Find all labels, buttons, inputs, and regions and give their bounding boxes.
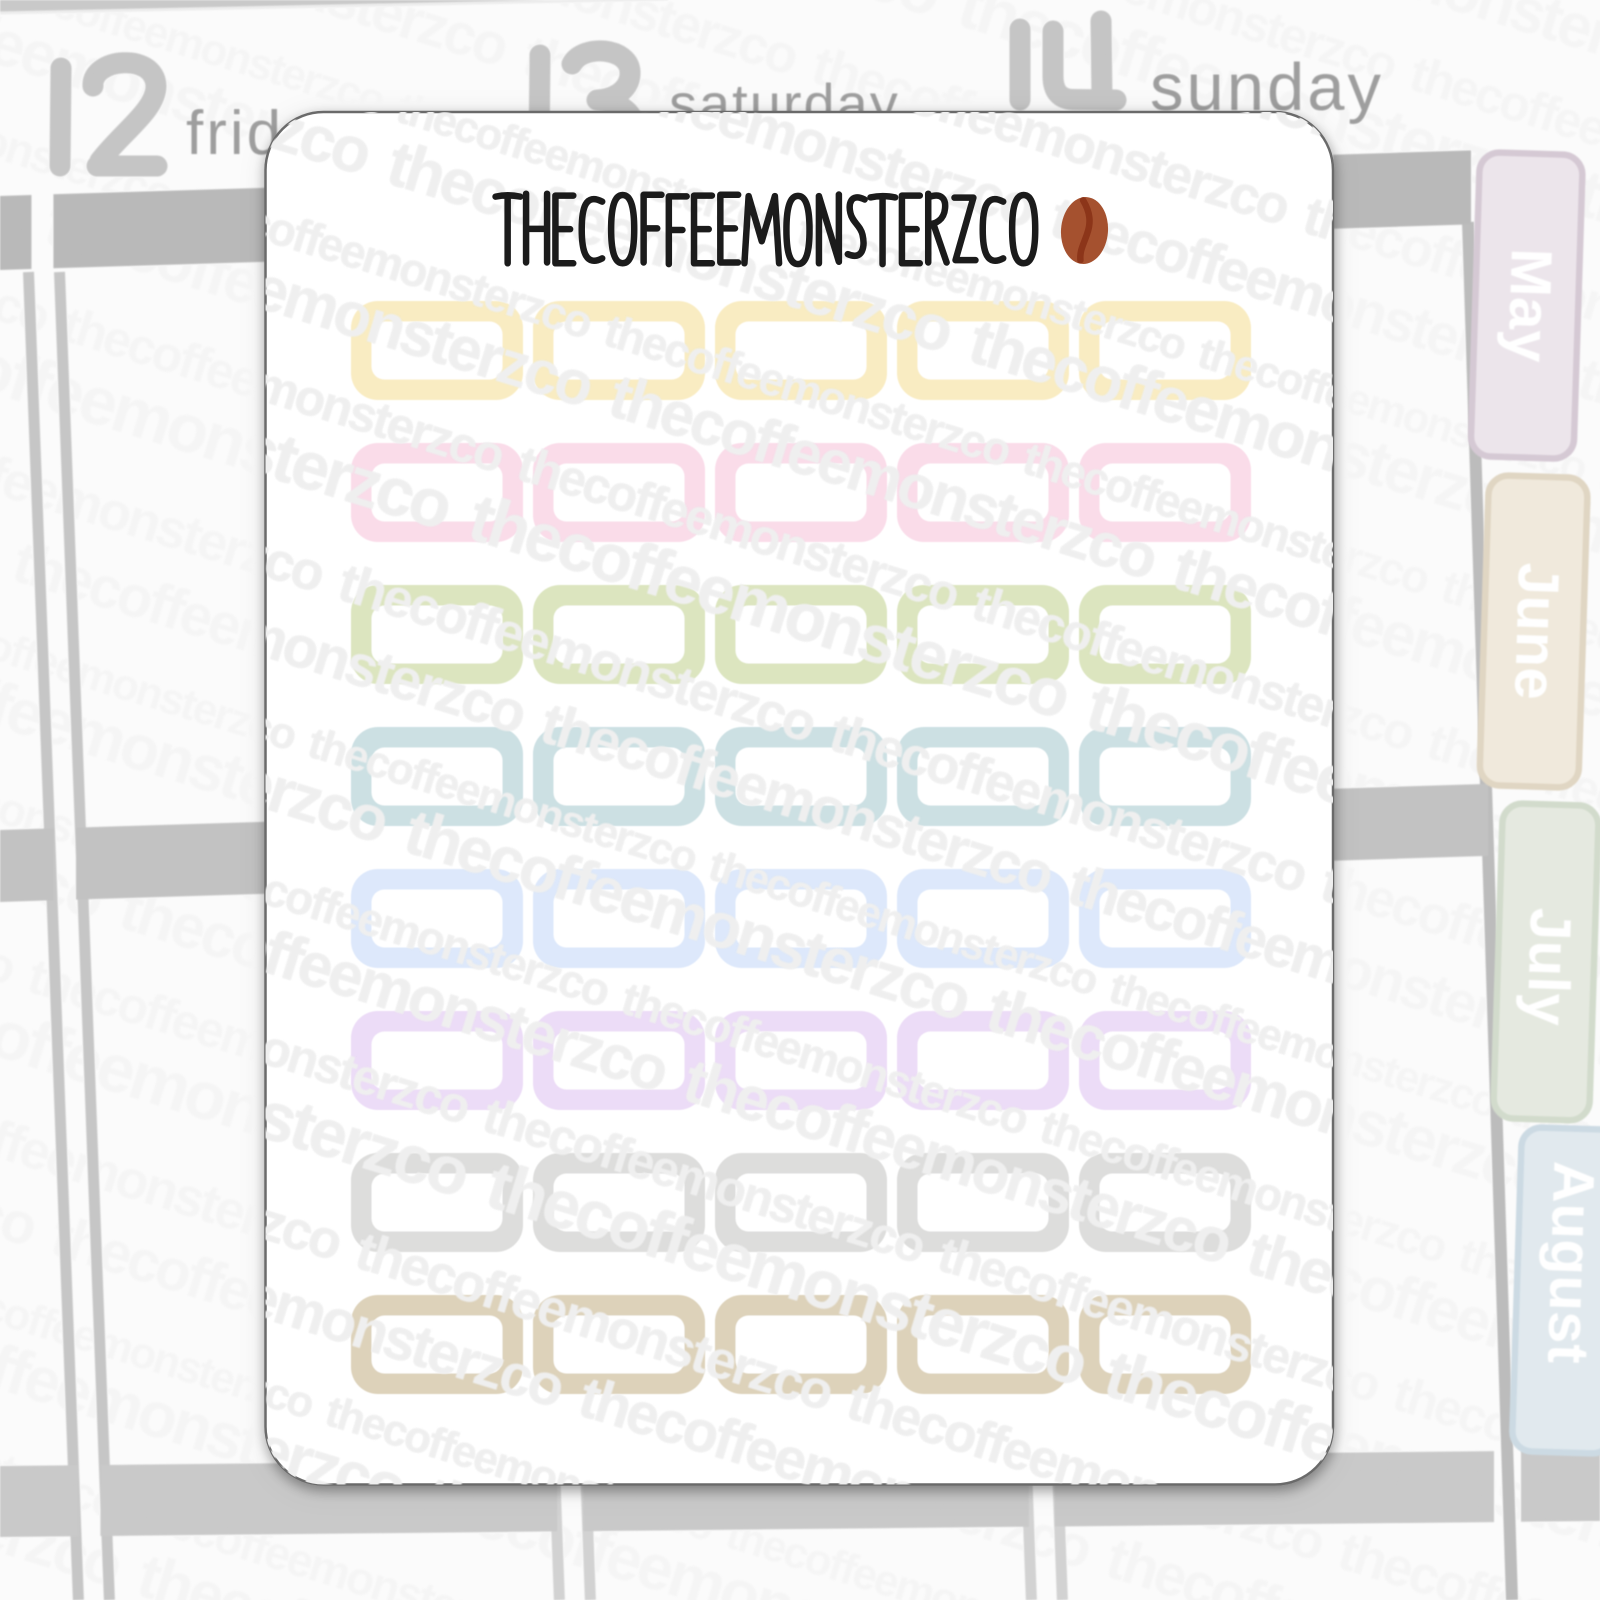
svg-text:June: June xyxy=(1502,562,1571,701)
svg-text:July: July xyxy=(1515,907,1584,1027)
svg-text:May: May xyxy=(1495,247,1564,363)
svg-text:August: August xyxy=(1535,1160,1600,1365)
